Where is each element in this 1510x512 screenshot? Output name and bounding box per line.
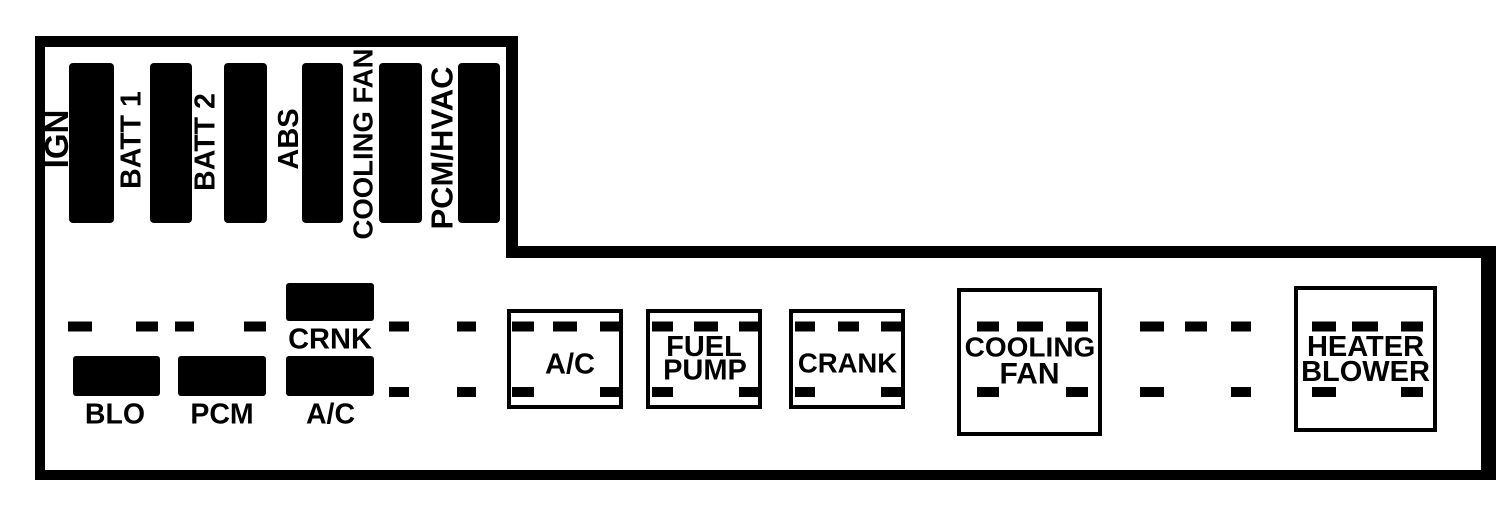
svg-text:BLOWER: BLOWER (1301, 356, 1430, 388)
svg-text:BATT 1: BATT 1 (116, 91, 148, 189)
svg-text:A/C: A/C (545, 349, 595, 381)
svg-text:IGN: IGN (38, 110, 75, 169)
svg-text:COOLING FAN: COOLING FAN (348, 49, 379, 240)
svg-text:FAN: FAN (1000, 358, 1060, 391)
svg-text:CRANK: CRANK (798, 348, 897, 379)
svg-text:PCM/HVAC: PCM/HVAC (425, 66, 460, 229)
svg-text:A/C: A/C (306, 399, 355, 431)
svg-text:BATT 2: BATT 2 (190, 93, 222, 191)
svg-text:CRNK: CRNK (288, 324, 372, 356)
svg-text:PCM: PCM (190, 399, 253, 431)
svg-text:BLO: BLO (85, 399, 145, 431)
svg-text:ABS: ABS (273, 108, 305, 169)
svg-text:PUMP: PUMP (663, 355, 747, 387)
